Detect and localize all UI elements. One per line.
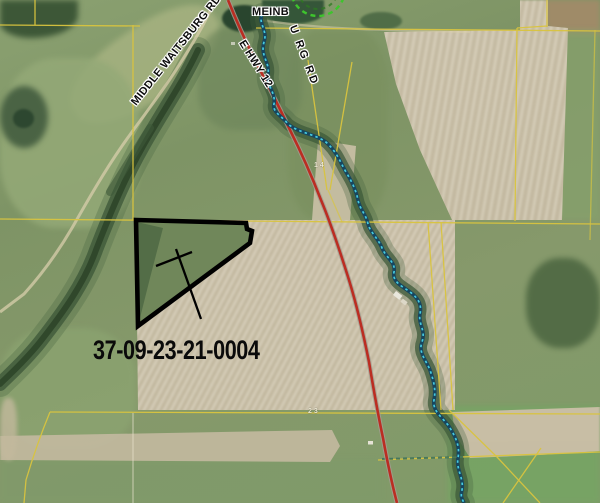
building [231,42,235,45]
creek-corridor [261,14,464,503]
section-marker-south: 23 [308,408,320,415]
creek-casing [261,14,464,503]
wooded-draw [0,50,198,384]
parcel-id-label: 37-09-23-21-0004 [93,337,260,364]
parcel-map-viewport[interactable]: MIDDLE WAITSBURG RD E HWY 12 MEINB U RG … [0,0,600,503]
road-label-meinburg-upper: MEINB [252,7,289,18]
irrigation-circle-inner [298,0,338,9]
building [368,441,373,445]
irrigation-circle-outer [291,0,345,16]
creek-line [261,14,464,503]
map-overlay-layer [0,0,600,503]
section-marker-north: 14 [314,162,326,169]
